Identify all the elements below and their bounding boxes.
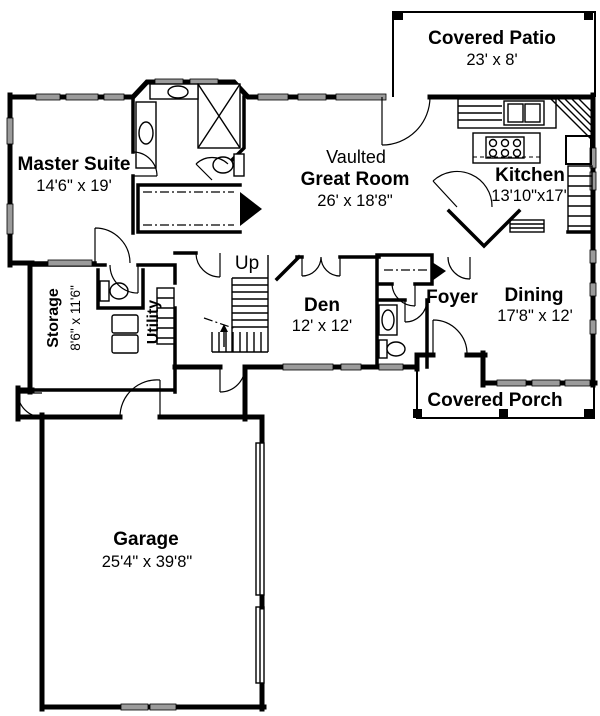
window: [258, 94, 288, 100]
window: [104, 94, 124, 100]
refrigerator: [566, 136, 591, 164]
den-double-doors: [302, 257, 340, 276]
counter-stub: [510, 220, 544, 232]
den-bath-door: [405, 300, 427, 322]
cabinet-lines: [568, 176, 592, 226]
counter-stub-lines: [510, 224, 544, 228]
den-label: Den: [304, 295, 340, 316]
closet-rod-lines: [143, 192, 234, 225]
storage-dims: 8'6" x 11'6": [68, 285, 83, 351]
garage-vent: [121, 704, 148, 710]
toilet-tank: [379, 340, 387, 358]
window: [590, 320, 596, 334]
burner: [502, 150, 509, 157]
storage-label: Storage: [45, 288, 62, 348]
window: [48, 260, 92, 266]
sink: [382, 310, 394, 330]
stair-direction-arrow: [220, 324, 228, 332]
window: [497, 380, 526, 386]
patio-post: [584, 11, 593, 20]
front-door: [433, 320, 467, 355]
window: [283, 364, 333, 370]
master-closet: [138, 185, 262, 232]
stair-hall-door: [196, 253, 220, 277]
floor-plan-canvas: Covered Patio 23' x 8' Covered Porch: [0, 0, 600, 716]
interior-walls: [10, 97, 593, 392]
patio-post: [394, 11, 403, 20]
toilet-bowl: [213, 157, 233, 173]
garage-dims: 25'4" x 39'8": [102, 553, 193, 571]
utility-label: Utility: [145, 300, 162, 345]
interior-wall-path: [10, 97, 593, 392]
side-door: [220, 367, 245, 392]
covered-porch-label: Covered Porch: [427, 390, 562, 411]
window: [590, 172, 596, 190]
sink: [139, 122, 153, 144]
kitchen: Kitchen 13'10"x17': [449, 99, 592, 246]
foyer-closet-door: [392, 284, 415, 306]
great-room-label: Great Room: [301, 169, 410, 190]
hall-bathroom: [100, 281, 128, 301]
covered-patio-label: Covered Patio: [428, 28, 556, 49]
window: [66, 94, 98, 100]
great-room-prefix: Vaulted: [326, 147, 386, 167]
corner-cabinet-hatch: [551, 99, 592, 140]
window: [7, 204, 13, 234]
garage-label: Garage: [113, 529, 178, 550]
porch-post: [584, 409, 593, 418]
window: [341, 364, 361, 370]
dining-dims: 17'8" x 12': [497, 307, 572, 325]
den-bathroom: [379, 305, 405, 358]
stair-break-line: [204, 318, 236, 329]
window: [336, 94, 386, 100]
garage: Garage 25'4" x 39'8": [102, 443, 264, 683]
covered-porch: Covered Porch: [413, 369, 594, 418]
burner: [502, 140, 509, 147]
garage-entry-door: [120, 380, 160, 417]
kitchen-dims: 13'10"x17': [491, 187, 566, 205]
dryer: [112, 335, 138, 353]
master-suite-dims: 14'6" x 19': [36, 177, 111, 195]
window: [565, 380, 590, 386]
room-labels: Master Suite 14'6" x 19' Vaulted Great R…: [18, 147, 573, 351]
foyer-closet: [384, 262, 446, 281]
toilet-tank: [100, 281, 109, 301]
covered-patio-dims: 23' x 8': [466, 51, 517, 69]
stairs-up-label: Up: [235, 253, 259, 274]
foyer-opening-door: [448, 257, 470, 279]
sink: [168, 86, 188, 98]
window: [590, 283, 596, 296]
burner: [490, 140, 497, 147]
burner: [514, 150, 521, 157]
closet-angled-wall: [240, 192, 262, 226]
foyer-closet-angled-wall: [432, 262, 446, 281]
kitchen-label: Kitchen: [495, 165, 565, 186]
toilet-bowl: [387, 342, 405, 356]
covered-patio: Covered Patio 23' x 8': [393, 11, 595, 97]
porch-post: [413, 409, 422, 418]
cabinet-lines: [458, 106, 502, 120]
burner: [490, 150, 497, 157]
master-suite-label: Master Suite: [18, 154, 131, 175]
stair-treads-upper: [232, 278, 268, 327]
dining-label: Dining: [504, 285, 563, 306]
master-suite-door: [95, 228, 130, 263]
rear-service-door: [18, 393, 42, 417]
window: [7, 118, 13, 144]
toilet-tank: [234, 154, 244, 176]
burner: [514, 140, 521, 147]
pantry-door: [433, 171, 492, 207]
great-room-dims: 26' x 18'8": [317, 192, 393, 210]
foyer-label: Foyer: [426, 287, 478, 308]
floor-plan-page: Covered Patio 23' x 8' Covered Porch: [0, 0, 600, 716]
pantry-walls: [449, 211, 519, 246]
den-dims: 12' x 12': [292, 317, 352, 335]
window: [36, 94, 60, 100]
stairs: Up: [204, 253, 268, 352]
window: [532, 380, 560, 386]
window: [379, 364, 403, 370]
stair-treads-lower: [219, 332, 261, 352]
washer: [112, 315, 138, 333]
window: [298, 94, 326, 100]
patio-door: [382, 97, 430, 145]
garage-vent: [150, 704, 176, 710]
window: [590, 250, 596, 263]
